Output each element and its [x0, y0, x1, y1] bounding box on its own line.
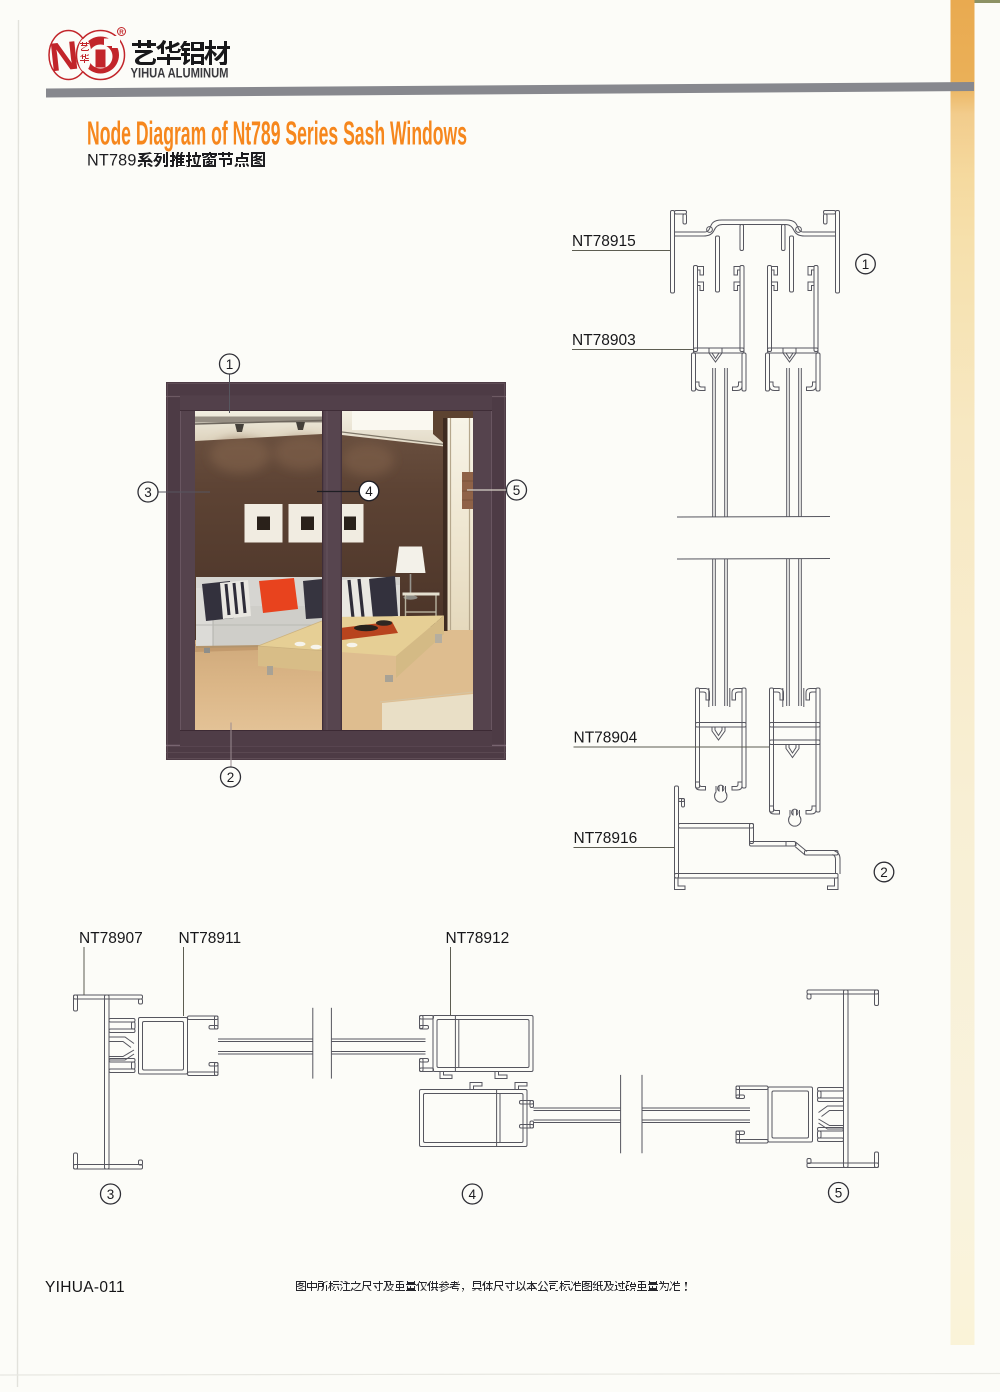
svg-text:N: N: [47, 34, 80, 81]
svg-text:1: 1: [226, 357, 234, 372]
svg-text:NT78904: NT78904: [574, 730, 638, 747]
svg-text:3: 3: [107, 1187, 115, 1202]
svg-text:YIHUA-011: YIHUA-011: [45, 1279, 125, 1296]
svg-text:2: 2: [227, 770, 235, 785]
svg-text:NT78907: NT78907: [79, 930, 143, 947]
svg-text:Node Diagram of Nt789 Series S: Node Diagram of Nt789 Series Sash Window…: [87, 115, 467, 152]
svg-text:NT78911: NT78911: [179, 930, 242, 947]
svg-text:4: 4: [469, 1187, 477, 1202]
svg-text:NT78916: NT78916: [574, 830, 638, 847]
svg-text:NT78912: NT78912: [446, 930, 510, 947]
svg-text:NT78903: NT78903: [572, 332, 636, 349]
svg-text:NT789: NT789: [87, 152, 137, 170]
svg-text:5: 5: [835, 1185, 843, 1200]
svg-text:2: 2: [880, 865, 888, 880]
svg-text:YIHUA ALUMINUM: YIHUA ALUMINUM: [131, 66, 229, 81]
svg-text:3: 3: [144, 485, 152, 500]
svg-text:1: 1: [862, 257, 870, 272]
svg-text:4: 4: [365, 484, 373, 499]
svg-text:R: R: [119, 29, 124, 36]
svg-text:5: 5: [513, 483, 521, 498]
svg-text:NT78915: NT78915: [572, 233, 636, 250]
